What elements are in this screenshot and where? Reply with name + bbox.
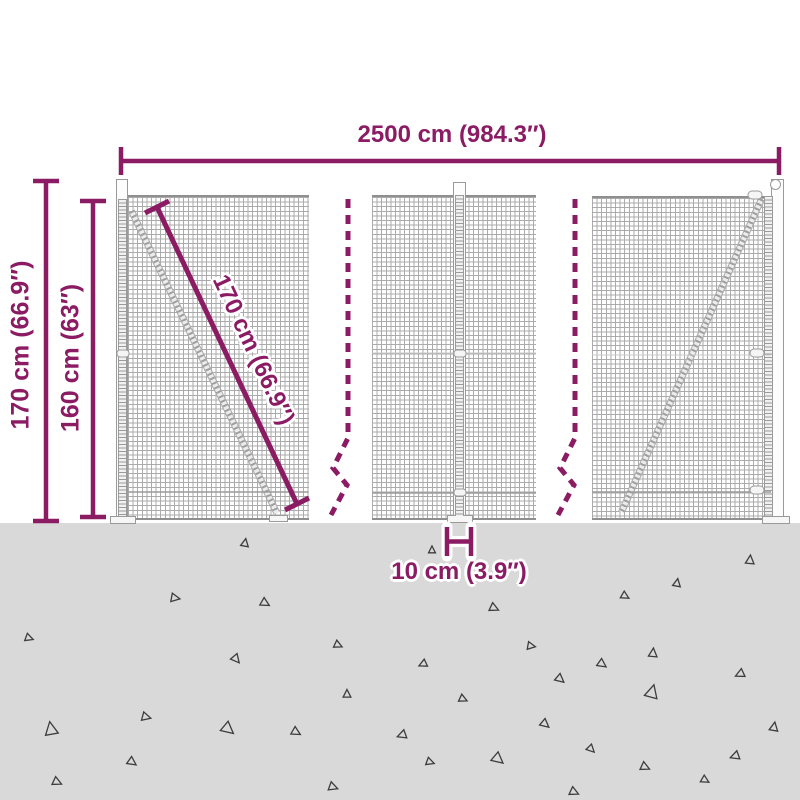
wire-coil-left [118, 199, 127, 516]
brace-foot-left-panel [269, 515, 288, 522]
product-dimension-diagram: 2500 cm (984.3″) 170 cm (66.9″) 160 cm (… [0, 0, 800, 800]
post-height-dimension-line [33, 181, 59, 521]
break-line-left [331, 199, 348, 515]
post-width-dimension-label: 10 cm (3.9″) [391, 558, 527, 586]
fence-panel-right-mesh [592, 196, 772, 520]
post-base-middle [447, 515, 473, 523]
wire-coil-right [764, 196, 773, 516]
break-line-right [558, 199, 575, 515]
mesh-height-dimension-label: 160 cm (63″) [57, 284, 86, 432]
post-height-dimension-label: 170 cm (66.9″) [7, 260, 36, 429]
post-base-right [762, 516, 790, 524]
width-dimension-label: 2500 cm (984.3″) [358, 121, 547, 149]
width-dimension-line [121, 147, 779, 175]
fence-post-right-cap [770, 179, 781, 190]
wire-coil-middle [455, 195, 464, 516]
post-base-left [110, 516, 136, 524]
fence-panel-left-mesh [128, 195, 309, 520]
